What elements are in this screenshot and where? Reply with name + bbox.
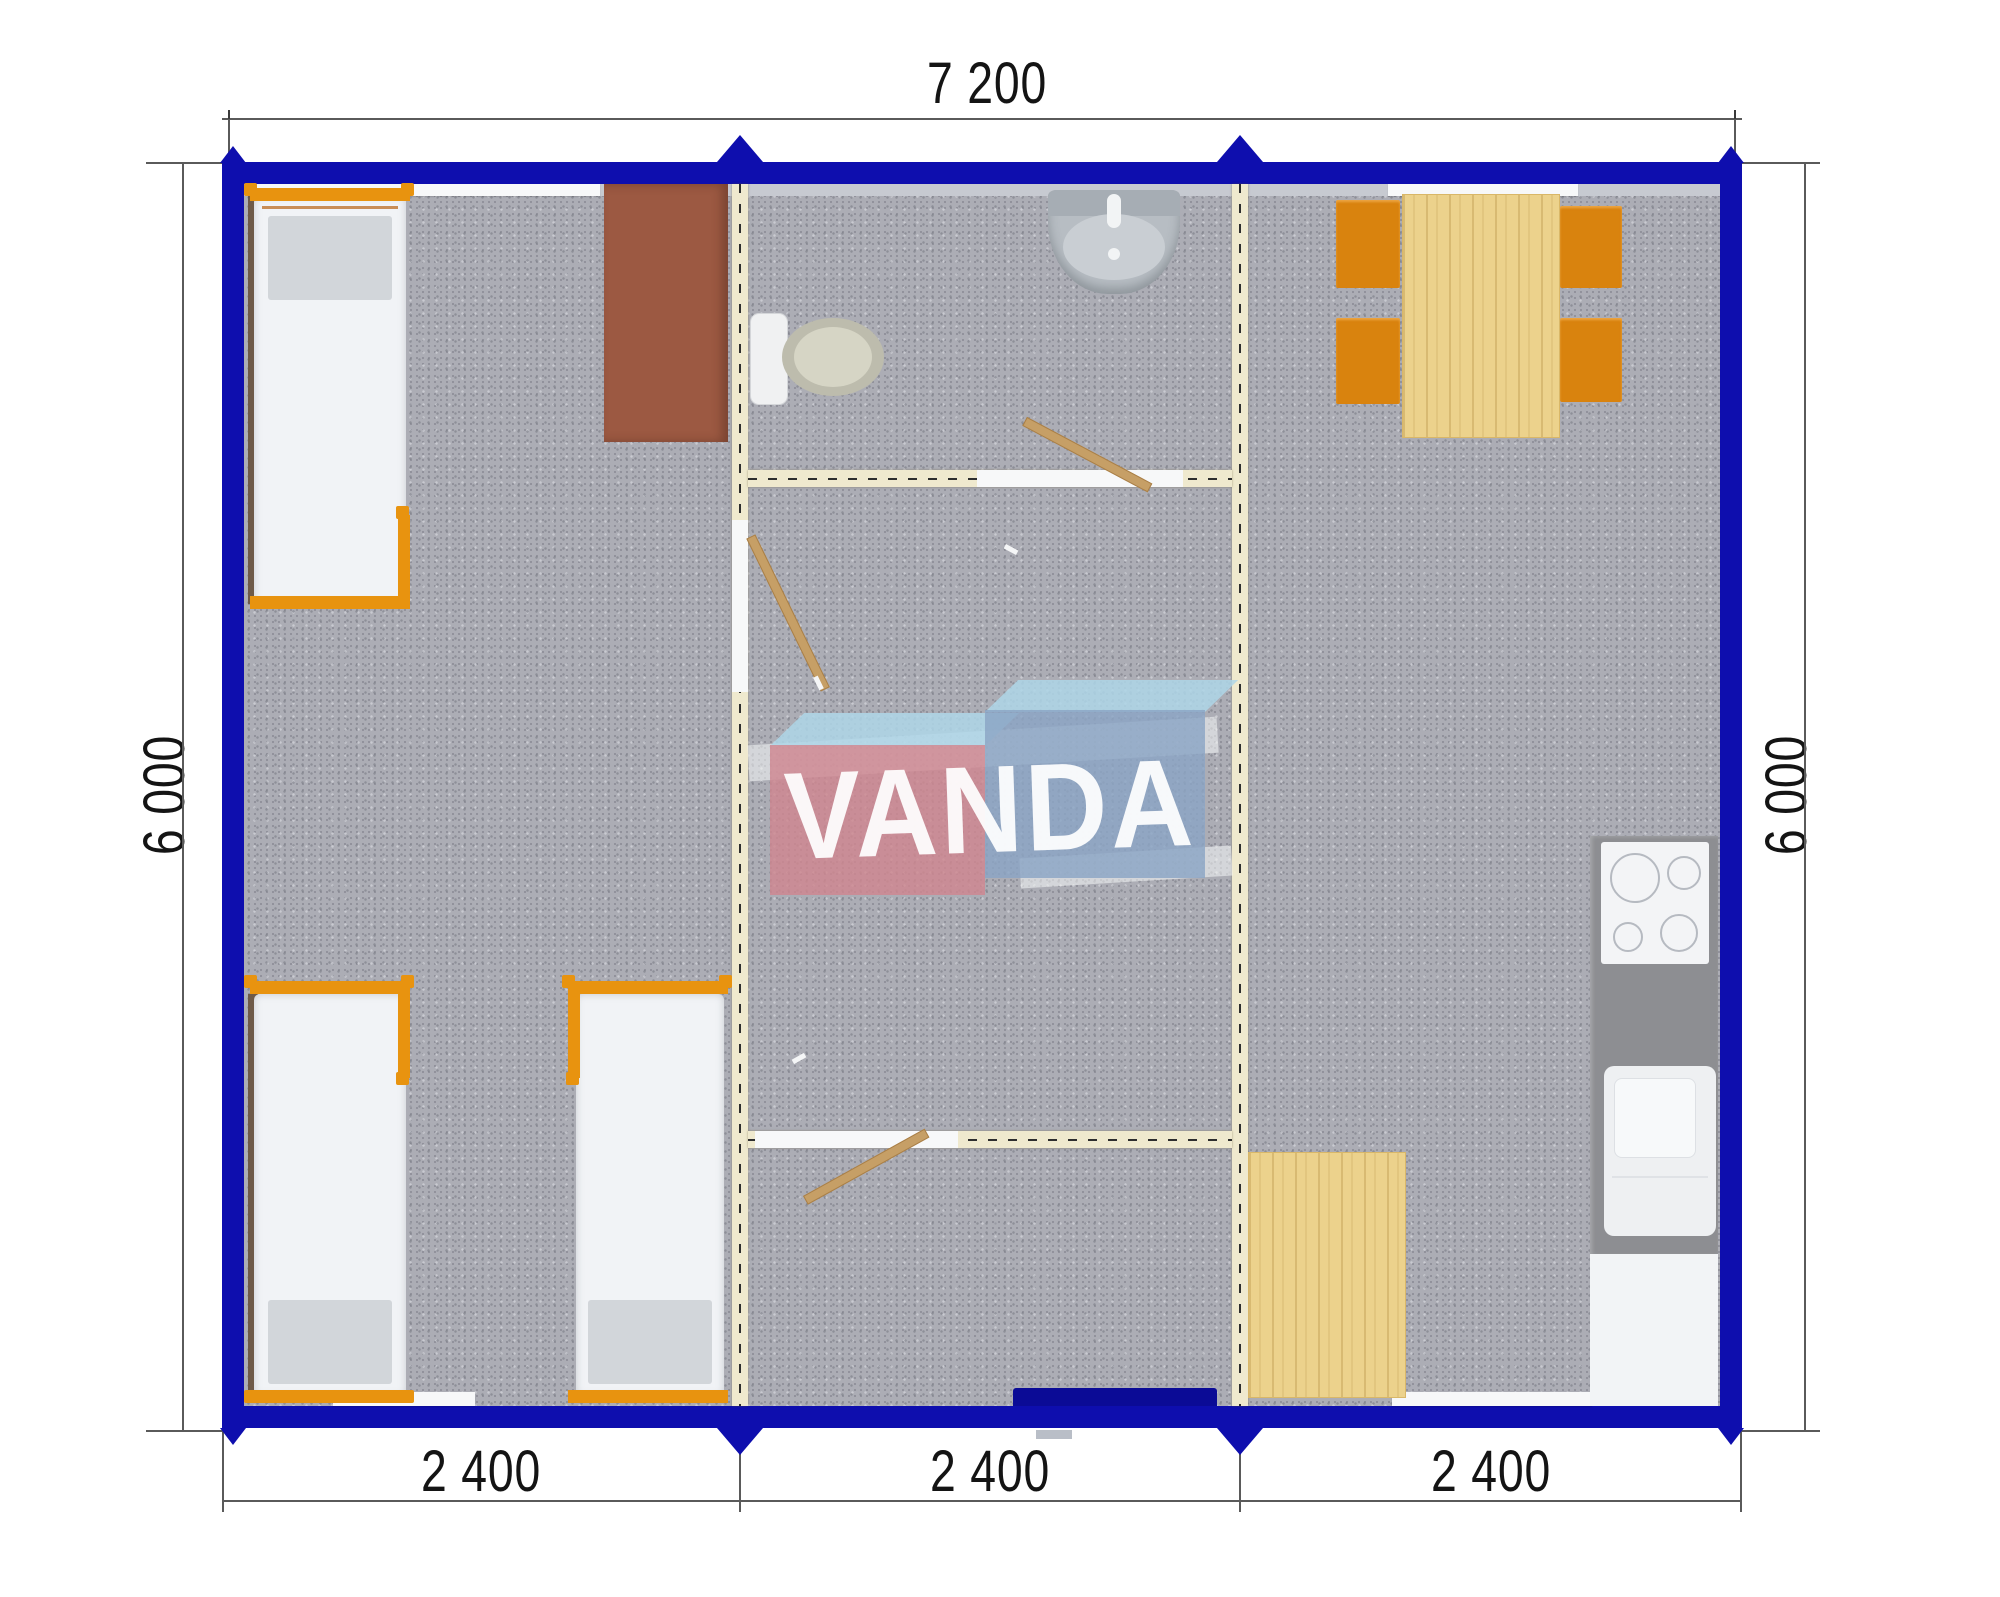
bed2-post-bottom-left: [244, 1390, 257, 1403]
bed1-rail-bottom: [250, 596, 410, 609]
bathroom-door-opening: [977, 470, 1183, 487]
kitchen-sink: [1604, 1066, 1716, 1236]
bedroom-door-opening: [732, 520, 748, 692]
bed3-rail-bottom: [568, 1390, 728, 1403]
kitchen-sink-basin: [1614, 1078, 1696, 1158]
faucet-icon: [1107, 194, 1121, 228]
corner-marker-top-left: [220, 146, 246, 163]
kitchen-cabinet: [1590, 1254, 1718, 1406]
dining-chair-top-right: [1560, 206, 1622, 288]
bed1-headboard-line: [262, 206, 398, 209]
kitchen-sink-divider: [1612, 1176, 1708, 1178]
dining-chair-bottom-right: [1560, 318, 1622, 402]
window-bottom-right-module: [1392, 1392, 1592, 1406]
entrance-door-threshold: [1013, 1388, 1217, 1406]
partition-wall-right: [1232, 184, 1248, 1406]
dimension-bottom-label-2: 2 400: [910, 1438, 1070, 1505]
bed2-post-bottom-right: [401, 1390, 414, 1403]
burner-small-top-icon: [1667, 856, 1701, 890]
dimension-bottom-label-1: 2 400: [401, 1438, 561, 1505]
dimension-left-line: [182, 163, 184, 1432]
bed3-post-top-right: [719, 975, 732, 988]
bathroom-wall: [748, 470, 1232, 487]
entrance-label-plate: [1036, 1430, 1072, 1439]
partition-centerline: [739, 184, 741, 1406]
bed1-post-right: [396, 506, 409, 519]
bed3-rail-top: [568, 981, 728, 994]
dining-table: [1402, 194, 1560, 438]
dimension-top-line: [222, 118, 1742, 120]
partition-wall-left: [732, 184, 748, 1406]
corner-marker-top-right: [1718, 146, 1744, 163]
hallway-wall: [748, 1131, 1232, 1148]
bed3-rail-left: [568, 994, 580, 1078]
dimension-left-ext-top: [146, 162, 228, 164]
watermark-box-right-top-face: [985, 680, 1238, 712]
bed1-pillow: [268, 216, 392, 300]
bed3-pillow: [588, 1300, 712, 1384]
partition-centerline: [1239, 184, 1241, 1406]
module-joint-marker-bottom-1: [717, 1428, 763, 1455]
bed1-post-top-left: [244, 183, 257, 196]
dimension-right-label: 6 000: [1753, 731, 1807, 859]
dimension-left-label: 6 000: [131, 731, 185, 859]
module-joint-marker-top-1: [717, 135, 763, 162]
bed2-post-top-right: [401, 975, 414, 988]
dimension-right-ext-top: [1740, 162, 1820, 164]
bed1-rail-right: [398, 515, 410, 609]
floor-plan-canvas: 7 200 6 000 6 000 2 400 2 400 2 400: [0, 0, 2000, 1597]
bed2-rail-right: [398, 994, 410, 1078]
burner-small-bottom-icon: [1613, 922, 1643, 952]
module-joint-marker-bottom-2: [1217, 1428, 1263, 1455]
bed3-post-top-left: [562, 975, 575, 988]
bed2-post-right: [396, 1072, 409, 1085]
burner-large-icon: [1610, 853, 1660, 903]
module-joint-marker-top-2: [1217, 135, 1263, 162]
drain-icon: [1108, 248, 1120, 260]
toilet-seat: [794, 327, 872, 387]
bed2-rail-top: [250, 981, 410, 994]
dimension-top-label: 7 200: [907, 50, 1067, 117]
bed1-rail-top: [250, 188, 410, 201]
dimension-right-line: [1804, 163, 1806, 1432]
corner-marker-bottom-left: [220, 1428, 246, 1445]
dimension-bottom-label-3: 2 400: [1411, 1438, 1571, 1505]
bed3-post-left: [566, 1072, 579, 1085]
bed1-post-top-right: [401, 183, 414, 196]
dining-chair-top-left: [1336, 200, 1400, 288]
dimension-left-ext-bottom: [146, 1430, 228, 1432]
bed2-post-top-left: [244, 975, 257, 988]
dining-chair-bottom-left: [1336, 318, 1400, 404]
side-table: [1248, 1152, 1406, 1398]
wardrobe: [604, 184, 728, 442]
bed2-rail-bottom: [250, 1390, 410, 1403]
bed2-pillow: [268, 1300, 392, 1384]
burner-medium-icon: [1660, 914, 1698, 952]
corner-marker-bottom-right: [1718, 1428, 1744, 1445]
watermark-text: VANDA: [776, 735, 1204, 890]
dimension-right-ext-bottom: [1740, 1430, 1820, 1432]
cooktop: [1601, 842, 1709, 964]
